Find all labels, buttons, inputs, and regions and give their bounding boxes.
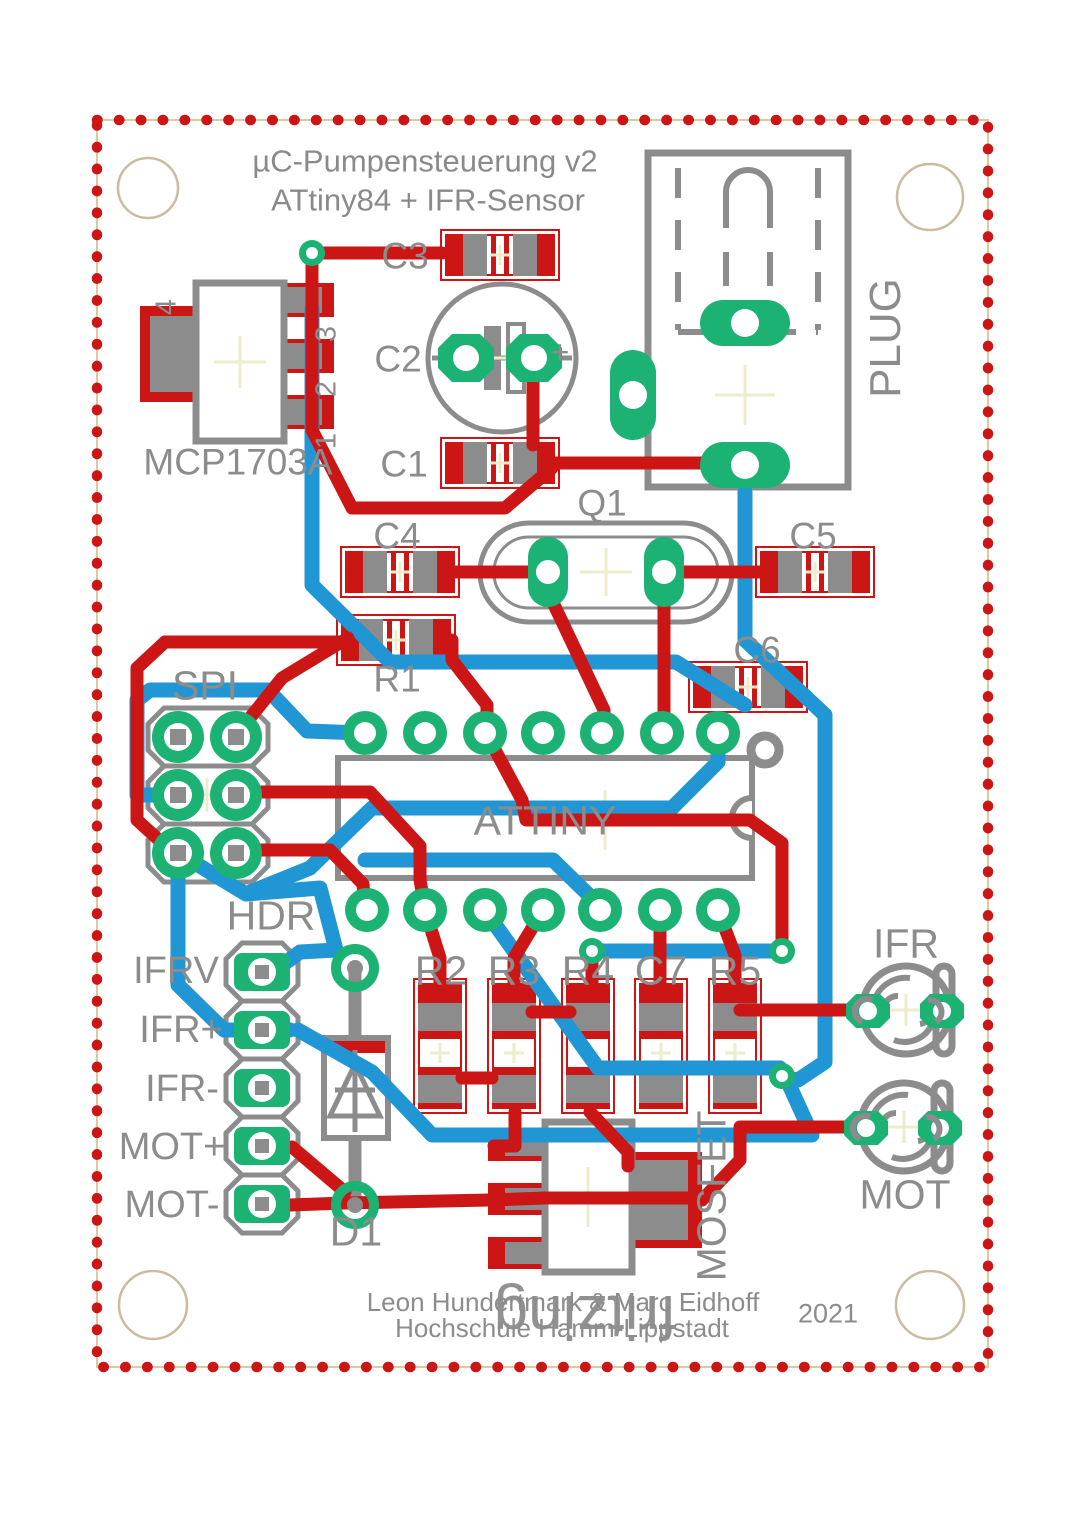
label-r4: R4 [562, 951, 614, 992]
label-spi: SPI [172, 666, 238, 707]
label-hdr: HDR [227, 896, 316, 937]
label-mosfet: MOSFET [692, 1111, 733, 1282]
mcp-pin-3: 3 [313, 326, 342, 342]
mcp-pin-4: 4 [153, 299, 182, 315]
hdr-pads[interactable] [234, 953, 290, 1223]
credit-line1: Leon Hundertmark & Marc Eidhoff [367, 1289, 760, 1315]
label-c4: C4 [373, 518, 420, 555]
r2-footprint [414, 979, 466, 1113]
label-c1: C1 [380, 446, 427, 483]
unplated-via [751, 736, 779, 764]
hdr-pin-mot-plus: MOT+ [119, 1128, 226, 1166]
label-c3: C3 [381, 238, 428, 275]
c2-plus-mark: + [551, 336, 570, 368]
label-r3: R3 [488, 951, 540, 992]
mcp-pin-1: 1 [313, 433, 342, 449]
board-title-line2: ATtiny84 + IFR-Sensor [271, 185, 585, 216]
r5-footprint [709, 979, 761, 1113]
c3-footprint [441, 230, 559, 280]
hdr-pin-ifr-plus: IFR+ [139, 1011, 222, 1049]
label-c7: C7 [635, 951, 687, 992]
label-d1: D1 [330, 1212, 382, 1253]
label-c6: C6 [733, 632, 780, 669]
label-r5: R5 [709, 951, 761, 992]
mounting-hole [119, 1271, 187, 1339]
board-title-line1: µC-Pumpensteuerung v2 [252, 146, 597, 177]
trace [292, 1147, 345, 1192]
label-r1: R1 [373, 661, 420, 698]
label-mot: MOT [859, 1175, 950, 1216]
year-label: 2021 [798, 1301, 858, 1328]
label-attiny: ATTINY [474, 801, 617, 842]
r3-footprint [488, 979, 540, 1113]
credit-line2: Hochschule Hamm-Lippstadt [395, 1315, 729, 1341]
label-ifr: IFR [873, 924, 939, 965]
hdr-pin-ifr-minus: IFR- [145, 1070, 219, 1108]
label-r2: R2 [415, 951, 467, 992]
label-q1: Q1 [577, 485, 626, 522]
label-c2: C2 [374, 341, 421, 378]
mounting-hole [118, 158, 178, 218]
mcp-pin-2: 2 [313, 381, 342, 397]
mounting-hole [897, 164, 963, 230]
c7-footprint [635, 979, 687, 1113]
mounting-hole [896, 1271, 964, 1339]
label-plug: PLUG [864, 278, 908, 398]
hdr-pin-ifrv: IFRV [133, 952, 219, 990]
hdr-pin-mot-minus: MOT- [125, 1186, 220, 1224]
pcb-board-view: µC-Pumpensteuerung v2 ATtiny84 + IFR-Sen… [0, 0, 1085, 1535]
label-c5: C5 [789, 518, 836, 555]
label-mcp1703a: MCP1703A [143, 444, 332, 481]
